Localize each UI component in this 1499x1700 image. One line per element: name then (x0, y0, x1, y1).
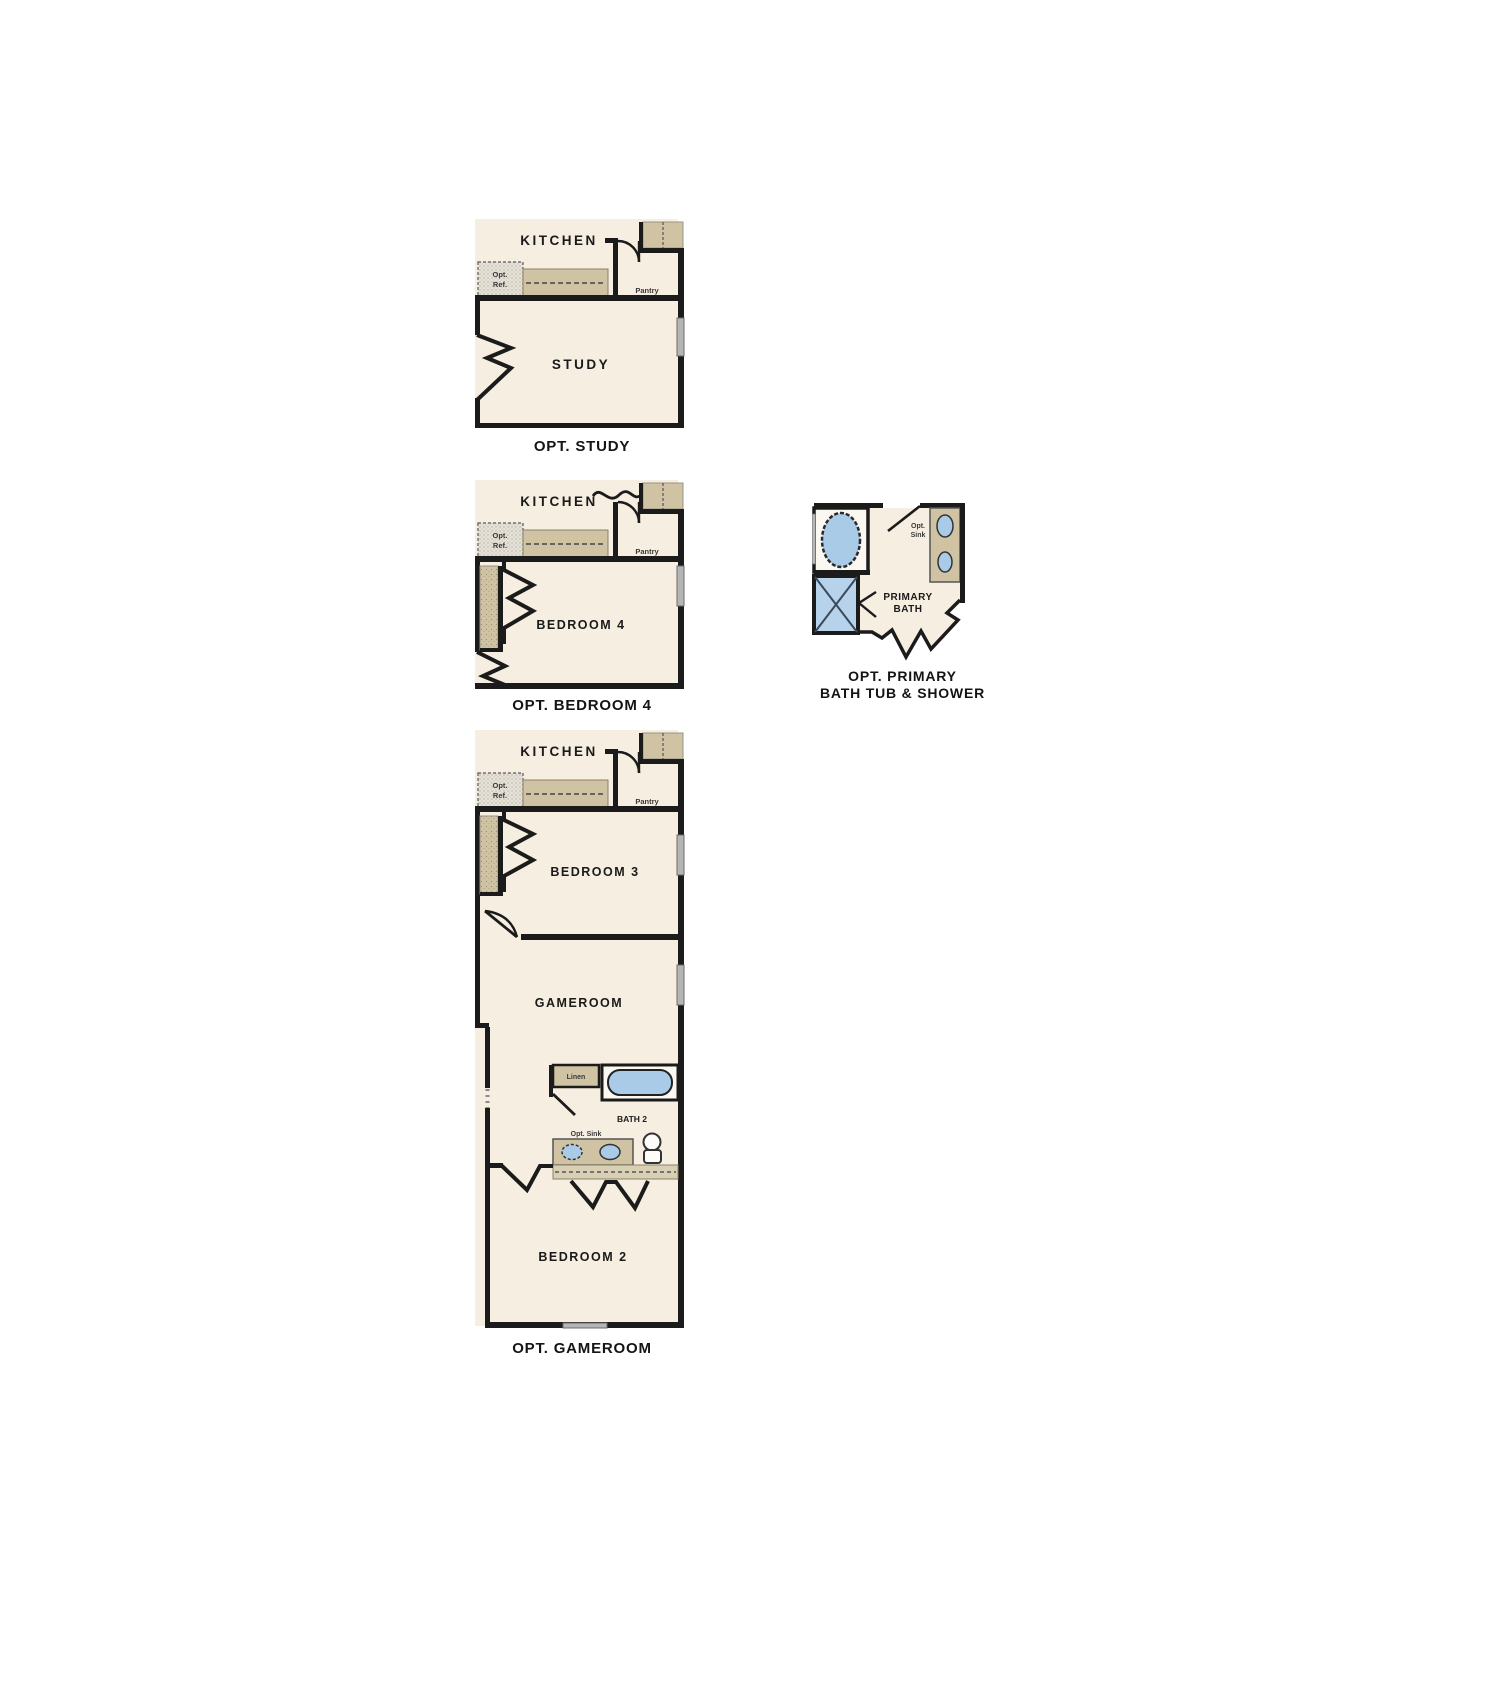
opt-ref-label: Ref. (493, 791, 507, 800)
bottom-wall (475, 683, 684, 689)
bath2-label: BATH 2 (617, 1114, 647, 1124)
window-marker (677, 318, 684, 356)
wall-segment (549, 1065, 553, 1097)
sink-icon (937, 515, 953, 537)
left-wall (475, 295, 480, 335)
left-wall (475, 940, 480, 1027)
kitchen-label: KITCHEN (520, 494, 598, 509)
bathtub-icon (822, 513, 860, 567)
plan-opt-gameroom: KITCHEN Opt. Ref. Pantry BEDROOM 3 GAMER… (475, 730, 689, 1335)
linen-label: Linen (567, 1074, 586, 1081)
caption-opt-primary-bath: OPT. PRIMARY BATH TUB & SHOWER (790, 668, 1015, 702)
kitchen-label: KITCHEN (520, 744, 598, 759)
room-top-wall (475, 556, 684, 562)
opt-sink-label: Opt. (911, 523, 925, 530)
closet (480, 816, 498, 894)
pantry-label: Pantry (635, 547, 659, 556)
study-label: STUDY (552, 357, 610, 372)
pantry-wall (613, 502, 618, 558)
bottom-wall (475, 423, 684, 428)
window-marker (677, 566, 684, 606)
left-wall (485, 1108, 490, 1328)
kitchen-label: KITCHEN (520, 233, 598, 248)
sink-icon (600, 1145, 620, 1160)
bathtub-icon (608, 1070, 672, 1095)
caption-line: OPT. PRIMARY (790, 668, 1015, 685)
opt-ref-box (478, 773, 523, 807)
opt-ref-label: Opt. (493, 270, 508, 279)
opt-ref-label: Ref. (493, 541, 507, 550)
pantry-wall (613, 241, 618, 297)
window-marker (812, 514, 816, 564)
left-wall (475, 806, 480, 896)
closet-wall (480, 648, 503, 652)
window-marker (563, 1323, 607, 1328)
opt-ref-label: Opt. (493, 531, 508, 540)
right-wall (960, 503, 965, 603)
closet (480, 566, 498, 650)
plan-opt-study: KITCHEN Opt. Ref. Pantry STUDY (475, 197, 689, 433)
window-marker (677, 835, 684, 875)
opt-ref-box (478, 523, 523, 557)
toilet-icon (644, 1150, 661, 1163)
caption-opt-gameroom: OPT. GAMEROOM (475, 1340, 689, 1357)
opt-sink-label: Sink (911, 532, 926, 539)
left-wall (485, 1027, 490, 1088)
bedroom4-label: BEDROOM 4 (536, 618, 625, 632)
wall-segment (639, 509, 684, 514)
caption-opt-study: OPT. STUDY (475, 438, 689, 455)
wall-segment (639, 759, 684, 764)
gameroom-label: GAMEROOM (535, 996, 623, 1010)
opt-sink-label: Opt. Sink (571, 1131, 602, 1138)
plan-opt-bedroom4: KITCHEN Opt. Ref. Pantry BEDROOM 4 (475, 458, 689, 694)
left-wall (475, 556, 480, 652)
sink-icon (938, 552, 952, 572)
bedroom3-label: BEDROOM 3 (550, 865, 639, 879)
wall-segment (639, 248, 684, 253)
pantry-label: Pantry (635, 286, 659, 295)
left-wall (475, 896, 480, 940)
window-marker (677, 965, 684, 1005)
pantry-label: Pantry (635, 797, 659, 806)
bedroom2-label: BEDROOM 2 (538, 1250, 627, 1264)
opt-ref-label: Ref. (493, 280, 507, 289)
study-top-wall (475, 295, 684, 301)
caption-line: BATH TUB & SHOWER (790, 685, 1015, 702)
optional-sink-icon (562, 1145, 582, 1160)
pantry-wall (613, 752, 618, 808)
closet-wall (480, 892, 503, 896)
caption-opt-bedroom4: OPT. BEDROOM 4 (475, 697, 689, 714)
opt-ref-label: Opt. (493, 781, 508, 790)
opt-ref-box (478, 262, 523, 296)
floor-plan-sheet: KITCHEN Opt. Ref. Pantry STUDY OPT. STUD… (0, 0, 1499, 1700)
primary-bath-label: PRIMARY (883, 592, 932, 603)
room-top-wall (475, 806, 684, 812)
gameroom-top-wall (521, 934, 684, 940)
primary-bath-label: BATH (893, 604, 922, 615)
toilet-icon (644, 1134, 661, 1151)
plan-opt-primary-bath: PRIMARY BATH Opt. Sink (812, 500, 968, 664)
